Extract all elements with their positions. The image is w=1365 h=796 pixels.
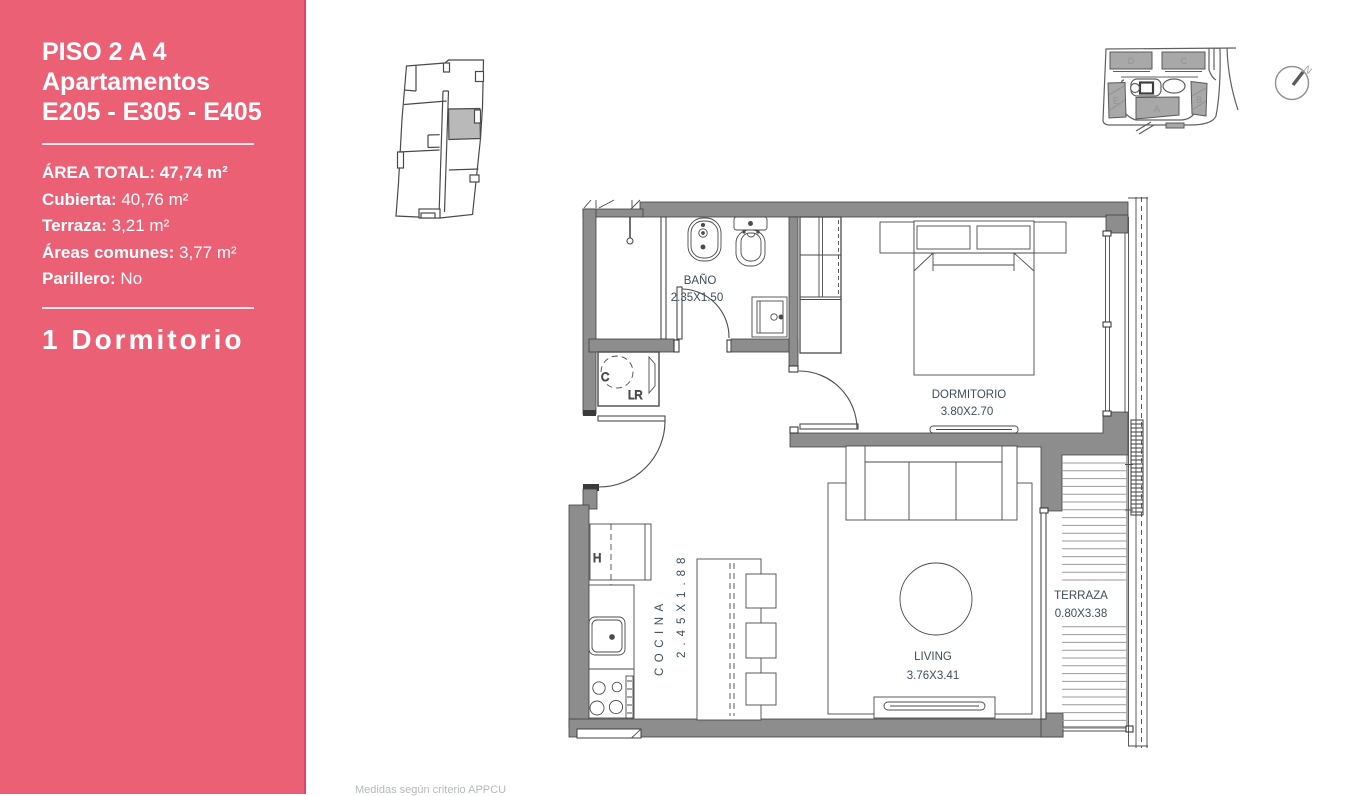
svg-text:N: N [1301,64,1314,77]
svg-text:2.45X1.88: 2.45X1.88 [676,552,688,658]
svg-text:0.80X3.38: 0.80X3.38 [1055,608,1107,620]
svg-text:A: A [1154,104,1160,114]
svg-text:TERRAZA: TERRAZA [1054,590,1108,602]
svg-text:H: H [593,553,601,565]
svg-text:LR: LR [628,390,643,402]
svg-text:3.76X3.41: 3.76X3.41 [907,670,959,682]
svg-text:C: C [1181,56,1188,66]
svg-text:COCINA: COCINA [654,598,666,676]
svg-text:2.35X1.50: 2.35X1.50 [671,292,723,304]
svg-text:E: E [1113,96,1119,106]
svg-text:C: C [601,372,609,384]
svg-text:LIVING: LIVING [914,651,952,663]
svg-text:DORMITORIO: DORMITORIO [932,389,1007,401]
svg-text:B: B [1196,95,1202,105]
svg-text:BAÑO: BAÑO [684,274,717,287]
svg-text:D: D [1128,56,1135,66]
svg-text:3.80X2.70: 3.80X2.70 [941,406,993,418]
